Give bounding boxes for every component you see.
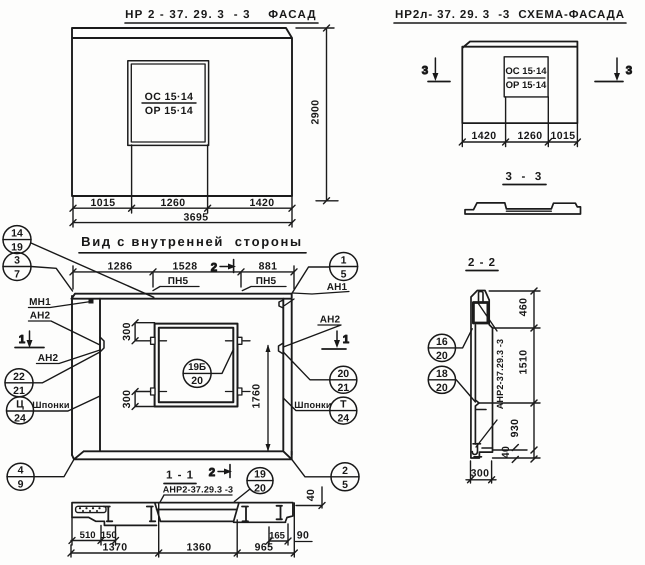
svg-text:1015: 1015 xyxy=(551,130,576,142)
svg-text:24: 24 xyxy=(337,413,349,425)
svg-text:1286: 1286 xyxy=(108,261,133,273)
svg-text:2 - 2: 2 - 2 xyxy=(468,257,496,269)
svg-text:300: 300 xyxy=(121,390,133,409)
svg-text:АНР2-37.29.3 -3: АНР2-37.29.3 -3 xyxy=(163,485,234,495)
svg-text:881: 881 xyxy=(259,261,278,273)
svg-text:965: 965 xyxy=(255,542,274,554)
svg-text:МН1: МН1 xyxy=(29,297,51,308)
svg-text:ПН5: ПН5 xyxy=(256,276,277,287)
svg-text:1015: 1015 xyxy=(91,197,116,209)
svg-text:Шпонки: Шпонки xyxy=(32,400,70,410)
svg-text:20: 20 xyxy=(436,350,448,362)
svg-text:22: 22 xyxy=(13,371,25,383)
svg-text:1: 1 xyxy=(341,255,347,267)
svg-text:21: 21 xyxy=(13,385,25,397)
svg-text:АН2: АН2 xyxy=(320,315,341,326)
svg-text:150: 150 xyxy=(101,530,117,541)
svg-text:Т: Т xyxy=(340,399,347,411)
svg-text:40: 40 xyxy=(500,446,512,458)
svg-text:Вид с внутренней стороны: Вид с внутренней стороны xyxy=(81,234,303,249)
svg-text:1370: 1370 xyxy=(103,542,128,554)
svg-text:21: 21 xyxy=(337,382,349,394)
svg-text:16: 16 xyxy=(436,336,448,348)
svg-text:1420: 1420 xyxy=(472,130,497,142)
svg-text:5: 5 xyxy=(341,269,347,281)
svg-text:9: 9 xyxy=(18,479,24,491)
svg-text:1528: 1528 xyxy=(173,261,198,273)
svg-text:300: 300 xyxy=(121,322,133,341)
svg-text:1420: 1420 xyxy=(250,197,275,209)
svg-text:1: 1 xyxy=(343,334,350,346)
svg-text:14: 14 xyxy=(11,228,23,240)
svg-text:2900: 2900 xyxy=(310,100,322,125)
svg-text:300: 300 xyxy=(471,468,490,480)
svg-text:АН2: АН2 xyxy=(30,311,51,322)
svg-text:НР 2 - 37. 29. 3 - 3 ФАСАД: НР 2 - 37. 29. 3 - 3 ФАСАД xyxy=(125,9,317,21)
svg-text:1510: 1510 xyxy=(518,350,530,375)
svg-text:ОС 15·14: ОС 15·14 xyxy=(145,91,194,103)
svg-text:1260: 1260 xyxy=(518,130,543,142)
svg-text:ОР 15·14: ОР 15·14 xyxy=(145,105,193,117)
svg-text:ПН5: ПН5 xyxy=(168,276,189,287)
svg-text:7: 7 xyxy=(14,269,20,281)
svg-text:2: 2 xyxy=(211,262,217,274)
svg-text:АНР2-37.29.3 -3: АНР2-37.29.3 -3 xyxy=(495,339,505,410)
svg-text:1760: 1760 xyxy=(251,384,263,409)
svg-text:24: 24 xyxy=(14,412,26,424)
svg-text:1260: 1260 xyxy=(161,197,186,209)
svg-text:3: 3 xyxy=(422,65,428,77)
svg-text:3 - 3: 3 - 3 xyxy=(505,171,544,183)
svg-text:20: 20 xyxy=(337,368,349,380)
svg-text:ОР 15·14: ОР 15·14 xyxy=(506,80,547,91)
svg-text:1360: 1360 xyxy=(187,542,212,554)
svg-text:20: 20 xyxy=(254,483,266,495)
svg-text:Шпонки: Шпонки xyxy=(294,400,332,410)
svg-text:90: 90 xyxy=(297,530,309,542)
svg-text:40: 40 xyxy=(305,489,317,501)
svg-text:18: 18 xyxy=(436,368,448,380)
svg-text:3695: 3695 xyxy=(184,212,209,224)
svg-text:3: 3 xyxy=(14,255,20,267)
svg-text:19: 19 xyxy=(254,469,266,481)
svg-text:АН2: АН2 xyxy=(38,353,59,364)
svg-text:510: 510 xyxy=(80,530,96,541)
svg-text:4: 4 xyxy=(18,465,24,477)
svg-text:20: 20 xyxy=(436,382,448,394)
svg-text:Ц: Ц xyxy=(16,398,24,410)
svg-text:460: 460 xyxy=(518,298,530,317)
svg-text:165: 165 xyxy=(269,531,286,542)
svg-text:19Б: 19Б xyxy=(188,362,206,373)
svg-text:ОС 15·14: ОС 15·14 xyxy=(505,66,547,77)
svg-text:20: 20 xyxy=(191,375,203,387)
svg-text:5: 5 xyxy=(342,479,348,491)
svg-text:930: 930 xyxy=(509,419,521,438)
svg-text:3: 3 xyxy=(626,65,632,77)
svg-text:1: 1 xyxy=(19,334,26,346)
svg-text:НР2л- 37. 29. 3 -3 СХЕМА-ФАС: НР2л- 37. 29. 3 -3 СХЕМА-ФАСАДА xyxy=(395,9,625,21)
svg-text:2: 2 xyxy=(209,467,215,479)
svg-text:2: 2 xyxy=(342,465,348,477)
svg-text:1 - 1: 1 - 1 xyxy=(166,470,194,482)
